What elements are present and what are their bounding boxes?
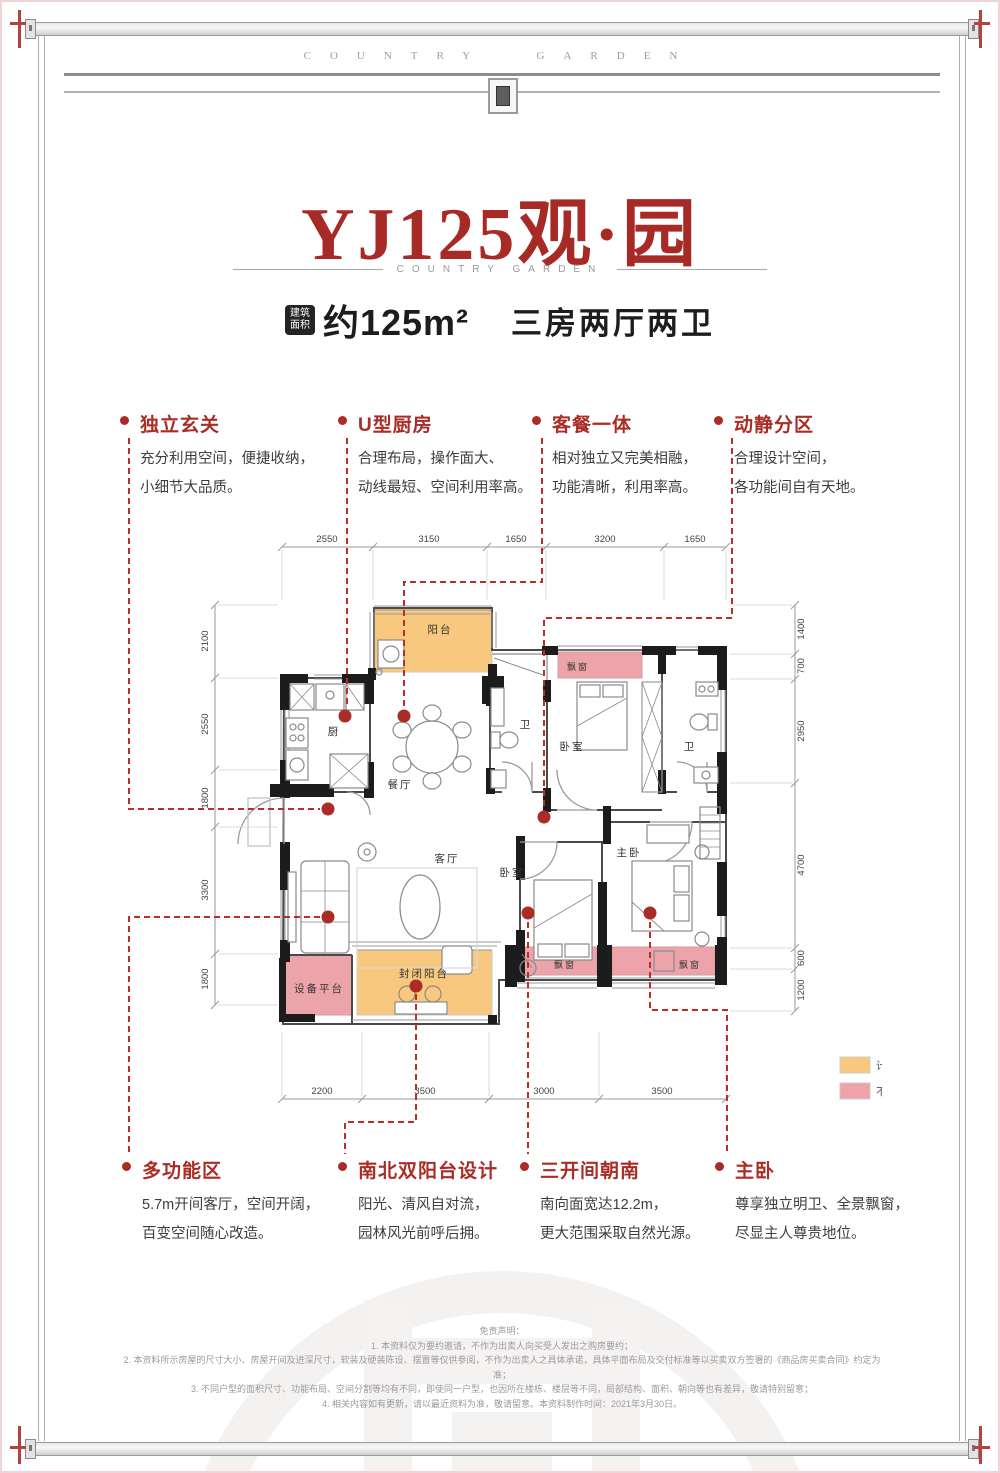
feature-line: 5.7m开间客厅，空间开阔， [142,1191,357,1220]
legend-swatch-half-area [840,1057,870,1073]
dim-label: 3300 [200,879,211,900]
room-label-living: 客厅 [435,852,460,865]
area-badge-line1: 建筑 [290,308,310,320]
bullet-icon [715,1162,724,1171]
bullet-icon [338,416,347,425]
poster-page: COUNTRY GARDEN YJ125观·园 COUNTRY GARDEN 建… [0,0,1000,1473]
feature-line: 尊享独立明卫、全景飘窗， [735,1191,950,1220]
area-badge: 建筑 面积 [285,305,315,335]
room-label-bedroom2: 卧室 [500,866,525,879]
dim-label: 600 [796,950,807,966]
feature-multifunction: 多功能区 5.7m开间客厅，空间开阔， 百变空间随心改造。 [122,1156,357,1249]
room-label-dining: 餐厅 [388,778,413,791]
dim-label: 3150 [418,534,439,545]
room-label-balcony: 阳台 [428,623,453,636]
bullet-icon [338,1162,347,1171]
crop-mark [974,1446,990,1449]
dim-label: 1650 [505,534,526,545]
disclaimer-line: 2. 本资料所示房屋的尺寸大小、房屋开间及进深尺寸，软装及硬装陈设、摆置等仅供参… [122,1353,882,1382]
frame-bottom-bar [35,1442,969,1456]
crop-mark [18,10,21,48]
dim-label: 3500 [414,1086,435,1097]
floor-plan: 阳台 飘窗 厨 餐厅 卫 卧室 卫 客厅 卧室 主卧 设备平台 封闭阳台 飘窗 … [102,432,882,1162]
feature-entry-hall: 独立玄关 充分利用空间，便捷收纳， 小细节大品质。 [120,410,355,503]
feature-title: 主卧 [735,1156,950,1183]
sub-brand-row: COUNTRY GARDEN [2,264,998,275]
crop-mark [979,1426,982,1464]
dim-label: 2200 [311,1086,332,1097]
feature-title: 多功能区 [142,1156,357,1183]
dim-label: 1400 [796,618,807,639]
room-label-master: 主卧 [617,846,642,859]
feature-line: 小细节大品质。 [140,474,355,503]
dim-label: 1800 [200,968,211,989]
sub-brand-text: COUNTRY GARDEN [397,264,604,275]
feature-master-bedroom: 主卧 尊享独立明卫、全景飘窗， 尽显主人尊贵地位。 [715,1156,950,1249]
crop-mark [18,1426,21,1464]
dim-label: 2950 [796,720,807,741]
room-label-enclosed-balcony: 封闭阳台 [399,967,449,980]
disclaimer-line: 3. 不同户型的面积尺寸、功能布局、空间分割等均有不同，即使同一户型，也因所在楼… [122,1382,882,1397]
legend-swatch-no-area [840,1083,870,1099]
frame-knob-icon [25,19,36,39]
sub-brand-line [233,269,383,270]
crop-mark [10,1446,26,1449]
bullet-icon [520,1162,529,1171]
bullet-icon [714,416,723,425]
room-label-bay: 飘窗 [567,661,589,672]
disclaimer-line: 4. 相关内容如有更新，请以最近资料为准，敬请留意。本资料制作时间：2021年3… [122,1397,882,1412]
frame-top-bar [35,22,969,36]
room-label-kitchen: 厨 [328,726,341,738]
plan-legend: 计一半面积 不计面积 [840,1057,882,1099]
feature-line: 合理设计空间， [734,445,949,474]
bullet-icon [532,416,541,425]
frame-knob-icon [968,1439,979,1459]
dim-label: 1800 [200,787,211,808]
bullet-icon [120,416,129,425]
brand-letters: COUNTRY GARDEN [2,50,998,62]
room-label-equipment: 设备平台 [294,982,344,995]
bullet-icon [122,1162,131,1171]
feature-line: 各功能间自有天地。 [734,474,949,503]
leader-lines [129,438,732,1154]
feature-line: 百变空间随心改造。 [142,1220,357,1249]
dim-label: 3200 [594,534,615,545]
frame-knob-icon [25,1439,36,1459]
crop-mark [979,10,982,48]
disclaimer-heading: 免责声明： [122,1324,882,1339]
feature-line: 尽显主人尊贵地位。 [735,1220,950,1249]
dim-label: 2550 [316,534,337,545]
legend-label: 不计面积 [876,1085,882,1098]
room-label-bath2: 卫 [684,741,697,753]
header-ornament-icon [488,78,518,114]
room-label-bath1: 卫 [520,719,533,731]
disclaimer-line: 1. 本资料仅为要约邀请，不作为出卖人向买受人发出之购房要约； [122,1339,882,1354]
header-rule-thick [64,73,940,76]
dim-label: 3000 [533,1086,554,1097]
dim-label: 1200 [796,979,807,1000]
feature-title: 独立玄关 [140,410,355,437]
area-value: 约125m² [323,294,469,346]
crop-mark [974,22,990,25]
dim-label: 4700 [796,854,807,875]
room-label-bay: 飘窗 [679,959,701,970]
disclaimer-block: 免责声明： 1. 本资料仅为要约邀请，不作为出卖人向买受人发出之购房要约； 2.… [122,1324,882,1411]
dim-label: 3500 [651,1086,672,1097]
legend-label: 计一半面积 [876,1059,882,1072]
room-label-bay: 飘窗 [554,959,576,970]
sub-brand-line [617,269,767,270]
layout-value: 三房两厅两卫 [511,298,715,343]
spec-row: 建筑 面积 约125m² 三房两厅两卫 [2,294,998,346]
dim-label: 2100 [200,630,211,651]
dim-label: 2550 [200,713,211,734]
area-badge-line2: 面积 [290,320,310,332]
dim-label: 1650 [684,534,705,545]
room-label-bedroom3: 卧室 [560,740,585,753]
feature-title: 动静分区 [734,410,949,437]
feature-line: 充分利用空间，便捷收纳， [140,445,355,474]
dim-label: 700 [796,658,807,674]
crop-mark [10,22,26,25]
feature-zoning: 动静分区 合理设计空间， 各功能间自有天地。 [714,410,949,503]
